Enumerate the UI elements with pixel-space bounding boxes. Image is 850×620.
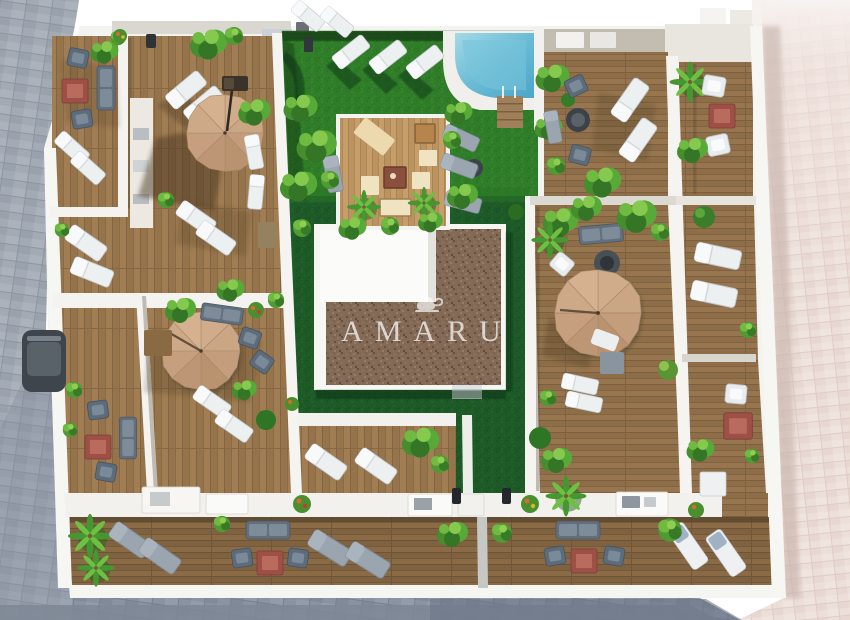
svg-text:AMARU: AMARU [341, 315, 513, 348]
